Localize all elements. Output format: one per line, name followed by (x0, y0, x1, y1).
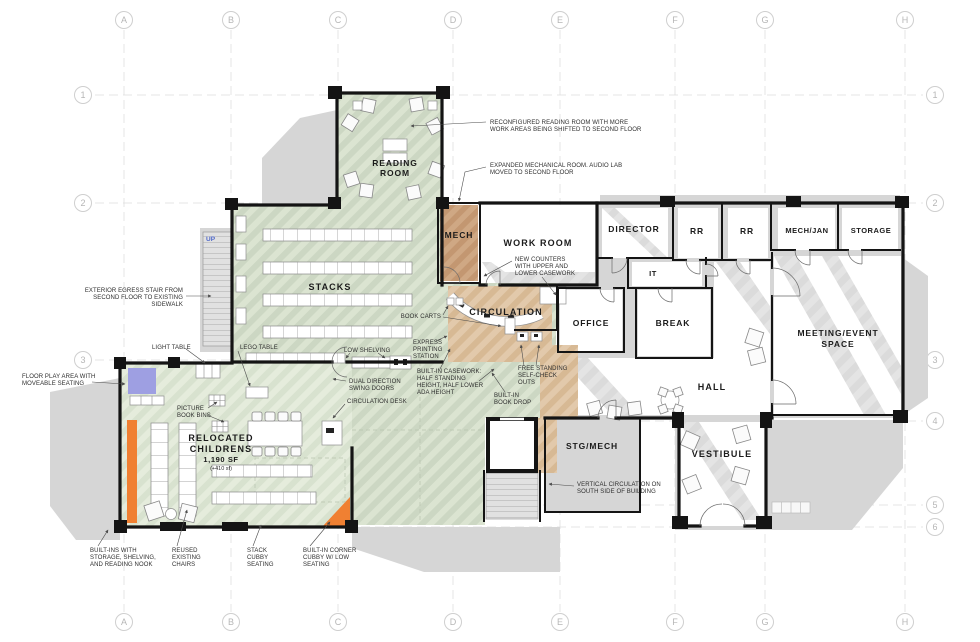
office-label: OFFICE (573, 318, 610, 328)
svg-text:RELOCATEDCHILDRENS: RELOCATEDCHILDRENS (188, 433, 253, 454)
svg-text:G: G (761, 15, 768, 25)
svg-text:1: 1 (932, 90, 937, 100)
stg-mech-label: STG/MECH (566, 441, 618, 451)
express-printing-note: EXPRESSPRINTINGSTATION (413, 340, 443, 360)
light-table (196, 364, 220, 378)
grid-col-h-bottom: H (897, 614, 914, 631)
floor-play-note: FLOOR PLAY AREA WITHMOVEABLE SEATING (22, 374, 95, 387)
grid-row-3-left: 3 (75, 352, 92, 369)
svg-text:6: 6 (932, 522, 937, 532)
south-stair (486, 473, 538, 519)
grid-row-4-right: 4 (927, 413, 944, 430)
builtins-nook-note: BUILT-INS WITHSTORAGE, SHELVING,AND READ… (90, 548, 156, 568)
vertical-circulation-note: VERTICAL CIRCULATION ONSOUTH SIDE OF BUI… (577, 482, 661, 495)
svg-text:F: F (672, 617, 678, 627)
reading-table (383, 139, 407, 151)
reused-chairs-note: REUSEDEXISTINGCHAIRS (172, 548, 201, 568)
stack-cubby-note: STACKCUBBYSEATING (247, 548, 274, 568)
rr2-label: RR (740, 226, 754, 236)
director-label: DIRECTOR (608, 224, 659, 234)
svg-text:E: E (557, 15, 563, 25)
svg-text:E: E (557, 617, 563, 627)
svg-text:A: A (121, 617, 127, 627)
childrens-area-delta: (+410 sf) (210, 466, 232, 472)
grid-col-a-top: A (116, 12, 133, 29)
rr1-label: RR (690, 226, 704, 236)
mech-note: EXPANDED MECHANICAL ROOM. AUDIO LABMOVED… (490, 163, 622, 176)
grid-col-g-top: G (757, 12, 774, 29)
book-cart (505, 318, 515, 334)
grid-col-a-bottom: A (116, 614, 133, 631)
hall-label: HALL (698, 382, 726, 392)
vestibule-label: VESTIBULE (692, 449, 752, 459)
dual-doors-note: DUAL DIRECTIONSWING DOORS (349, 379, 401, 392)
grid-col-d-bottom: D (445, 614, 462, 631)
grid-col-f-top: F (667, 12, 684, 29)
exterior-egress-stair: UP (203, 232, 233, 346)
svg-text:H: H (902, 15, 909, 25)
reading-room-note: RECONFIGURED READING ROOM WITH MOREWORK … (490, 120, 642, 133)
svg-text:3: 3 (80, 355, 85, 365)
svg-text:G: G (761, 617, 768, 627)
break-label: BREAK (656, 318, 691, 328)
floor-plan-sheet: A B C D E F G H A B C D E F G H 1 2 3 4 … (0, 0, 980, 642)
storage-label: STORAGE (851, 226, 891, 235)
svg-text:2: 2 (80, 198, 85, 208)
low-shelving-note: LOW SHELVING (344, 348, 391, 354)
grid-col-b-top: B (223, 12, 240, 29)
grid-row-2-left: 2 (75, 195, 92, 212)
floor-play-area (128, 368, 156, 394)
grid-row-1-left: 1 (75, 87, 92, 104)
stacks-label: STACKS (309, 282, 352, 292)
grid-row-1-right: 1 (927, 87, 944, 104)
svg-text:1: 1 (80, 90, 85, 100)
grid-row-6-right: 6 (927, 519, 944, 536)
svg-text:A: A (121, 15, 127, 25)
workroom-counter (540, 287, 566, 304)
grid-col-g-bottom: G (757, 614, 774, 631)
svg-text:D: D (450, 617, 457, 627)
mech-floor (440, 205, 478, 281)
lego-table (246, 387, 268, 398)
corner-cubby-note: BUILT-IN CORNERCUBBY W/ LOWSEATING (303, 548, 357, 568)
svg-text:4: 4 (932, 416, 937, 426)
book-cart (447, 298, 454, 305)
book-cart (456, 298, 463, 305)
light-table-note: LIGHT TABLE (152, 345, 191, 351)
svg-text:F: F (672, 15, 678, 25)
grid-col-f-bottom: F (667, 614, 684, 631)
lego-table-note: LEGO TABLE (240, 345, 278, 351)
stair-up-label: UP (206, 236, 216, 243)
side-table (166, 509, 177, 520)
floor-plan-drawing: A B C D E F G H A B C D E F G H 1 2 3 4 … (0, 0, 980, 642)
svg-text:B: B (228, 617, 234, 627)
it-label: IT (649, 269, 657, 278)
svg-text:C: C (335, 617, 342, 627)
grid-col-e-bottom: E (552, 614, 569, 631)
scale-bar (772, 502, 810, 513)
egress-stair-note: EXTERIOR EGRESS STAIR FROMSECOND FLOOR T… (85, 288, 183, 308)
builtin-storage-orange (127, 420, 137, 523)
mech-jan-label: MECH/JAN (785, 226, 828, 235)
svg-text:2: 2 (932, 198, 937, 208)
grid-row-5-right: 5 (927, 497, 944, 514)
grid-row-2-right: 2 (927, 195, 944, 212)
svg-text:B: B (228, 15, 234, 25)
grid-col-c-bottom: C (330, 614, 347, 631)
grid-col-d-top: D (445, 12, 462, 29)
circulation-label: CIRCULATION (469, 307, 542, 317)
svg-text:H: H (902, 617, 909, 627)
childrens-table (248, 421, 302, 446)
grid-col-c-top: C (330, 12, 347, 29)
grid-row-3-right: 3 (927, 352, 944, 369)
svg-text:D: D (450, 15, 457, 25)
childrens-area-sf: 1,190 SF (203, 455, 238, 464)
grid-col-h-top: H (897, 12, 914, 29)
svg-text:C: C (335, 15, 342, 25)
work-room-label: WORK ROOM (504, 238, 573, 248)
book-carts-note: BOOK CARTS (401, 314, 441, 320)
svg-text:5: 5 (932, 500, 937, 510)
grid-col-e-top: E (552, 12, 569, 29)
circulation-desk-note: CIRCULATION DESK (347, 399, 407, 405)
svg-text:3: 3 (932, 355, 937, 365)
grid-col-b-bottom: B (223, 614, 240, 631)
mech-label: MECH (445, 230, 474, 240)
